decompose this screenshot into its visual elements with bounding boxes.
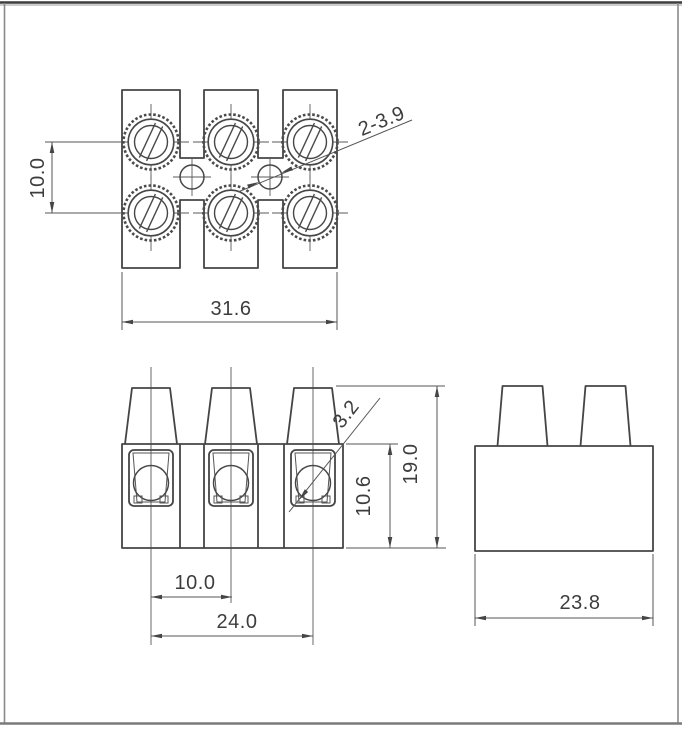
dim-overall-width-label: 31.6 — [211, 298, 252, 320]
dim-pole-pitch-label: 10.0 — [175, 572, 216, 594]
side-view: 23.8 — [475, 386, 653, 626]
dim-pole-pitch: 10.0 — [151, 572, 232, 599]
dim-row-pitch-label: 10.0 — [27, 158, 49, 199]
side-view-body — [475, 446, 653, 551]
screw-head-side — [581, 386, 631, 446]
dim-overall-height-label: 19.0 — [400, 444, 422, 485]
top-view: 2-3.9 10.0 31.6 — [27, 90, 412, 330]
dim-pole-span-label: 24.0 — [217, 611, 258, 633]
dim-depth: 23.8 — [475, 554, 653, 626]
dim-pole-span: 24.0 — [151, 611, 313, 638]
dim-body-height: 10.6 — [346, 444, 446, 548]
dim-row-pitch: 10.0 — [27, 142, 122, 213]
front-view: 3.2 10.6 19.0 10.0 — [122, 367, 446, 645]
drawing-page: 2-3.9 10.0 31.6 — [0, 0, 682, 732]
dim-body-height-label: 10.6 — [353, 476, 375, 517]
front-view-body — [122, 444, 343, 548]
page-frame — [0, 3, 682, 725]
screw-head-side — [498, 386, 548, 446]
callout-mounting-holes-label: 2-3.9 — [355, 102, 408, 141]
screw-terminal-top-view — [113, 175, 189, 251]
mounting-hole — [173, 158, 211, 196]
dim-overall-width: 31.6 — [122, 272, 337, 330]
technical-drawing-canvas: 2-3.9 10.0 31.6 — [0, 0, 682, 732]
mounting-hole — [251, 158, 289, 196]
dim-depth-label: 23.8 — [560, 592, 601, 614]
screw-terminal-top-view — [113, 104, 189, 180]
